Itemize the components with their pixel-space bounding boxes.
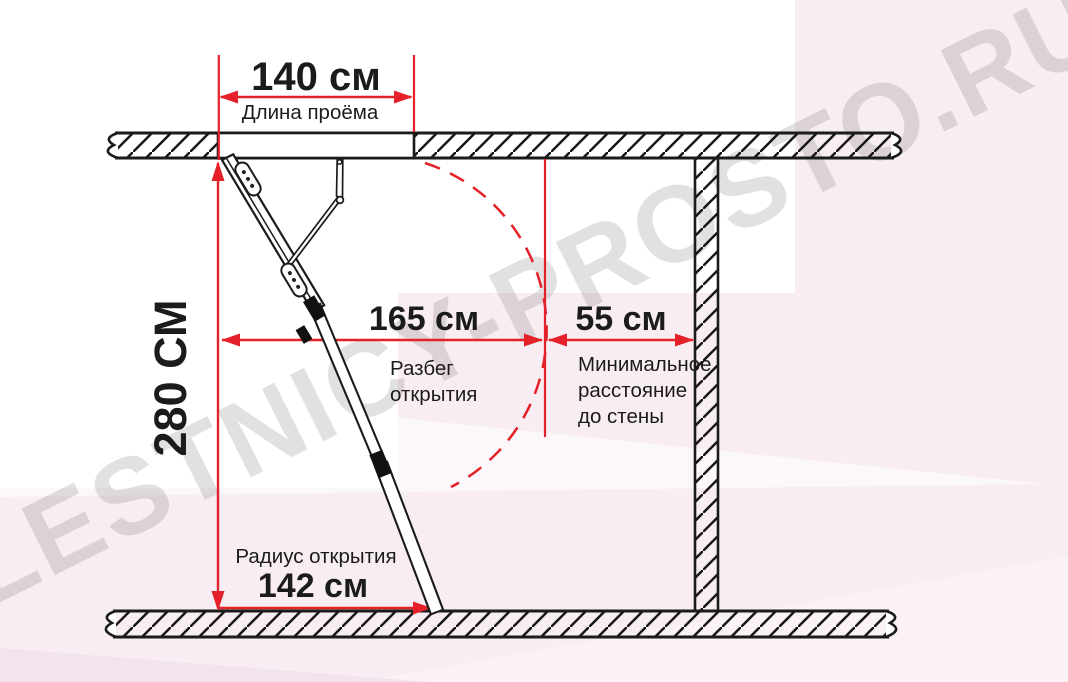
floor [106, 611, 896, 637]
rod-top-pivot [337, 160, 341, 164]
arrowhead-right [394, 91, 413, 104]
strut-elbow-pivot [337, 197, 344, 204]
opening-span-value: 165 см [369, 300, 479, 338]
ceiling-right-break [891, 133, 901, 158]
ladder-foot-section [375, 462, 443, 615]
wall-distance-label-1: Минимальное [578, 353, 712, 376]
arrowhead-left [221, 334, 240, 347]
diagram-canvas: 140 см Длина проёма 280 СМ 165 см Разбег… [0, 0, 1068, 682]
opening-span-label-1: Разбег [390, 357, 454, 380]
opening-radius-label: Радиус открытия [235, 545, 396, 568]
floor-right-break [886, 611, 896, 637]
opening-length-value: 140 см [251, 55, 381, 99]
arrowhead-left [219, 91, 238, 104]
opening-span-label-2: открытия [390, 383, 477, 406]
wall-hatch [695, 159, 718, 610]
ladder-lid-section [222, 154, 324, 312]
dim-ceiling-height [212, 161, 225, 611]
ceiling-left-break [108, 133, 118, 158]
wall-distance-label-2: расстояние [578, 379, 687, 402]
ceiling-height-value: 280 СМ [145, 300, 196, 457]
ceiling-opening [218, 133, 414, 158]
page: { "watermark": "LESTNICY-PROSTO.RU", "co… [0, 0, 1068, 682]
wall-distance-label-3: до стены [578, 405, 664, 428]
arrowhead-right [524, 334, 543, 347]
opening-length-label: Длина проёма [242, 101, 379, 124]
ladder-rod [337, 160, 343, 199]
ceiling [108, 133, 901, 158]
floor-left-break [106, 611, 116, 637]
ceiling-left-hatch [116, 134, 218, 157]
arrowhead-left [548, 334, 567, 347]
opening-radius-value: 142 см [258, 567, 368, 605]
wall-distance-value: 55 см [575, 300, 666, 338]
wall-column [695, 159, 718, 610]
arrowhead-right [675, 334, 694, 347]
arrowhead-up [212, 161, 225, 181]
ceiling-right-hatch [414, 134, 893, 157]
floor-hatch [114, 612, 886, 636]
ladder-strut [284, 197, 340, 269]
